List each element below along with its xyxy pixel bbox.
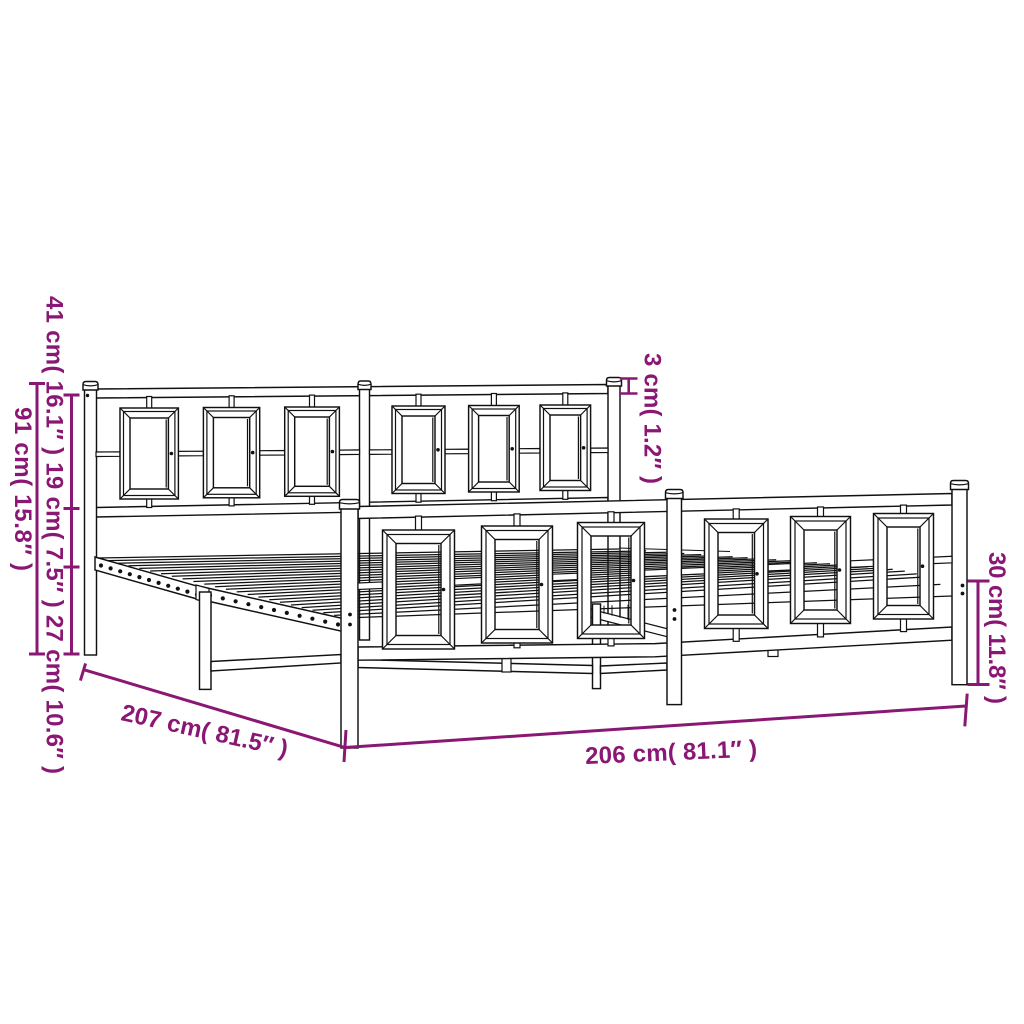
- svg-text:206 cm( 81.1″ ): 206 cm( 81.1″ ): [585, 736, 758, 770]
- svg-text:207 cm( 81.5″ ): 207 cm( 81.5″ ): [119, 699, 291, 762]
- svg-text:30 cm( 11.8″ ): 30 cm( 11.8″ ): [983, 552, 1010, 704]
- svg-text:91 cm( 15.8″ ): 91 cm( 15.8″ ): [9, 407, 36, 571]
- svg-text:41 cm( 16.1″ ) 19 cm( 7.5″ ) 2: 41 cm( 16.1″ ) 19 cm( 7.5″ ) 27 cm( 10.6…: [41, 296, 68, 774]
- svg-text:3 cm( 1.2″ ): 3 cm( 1.2″ ): [639, 353, 666, 484]
